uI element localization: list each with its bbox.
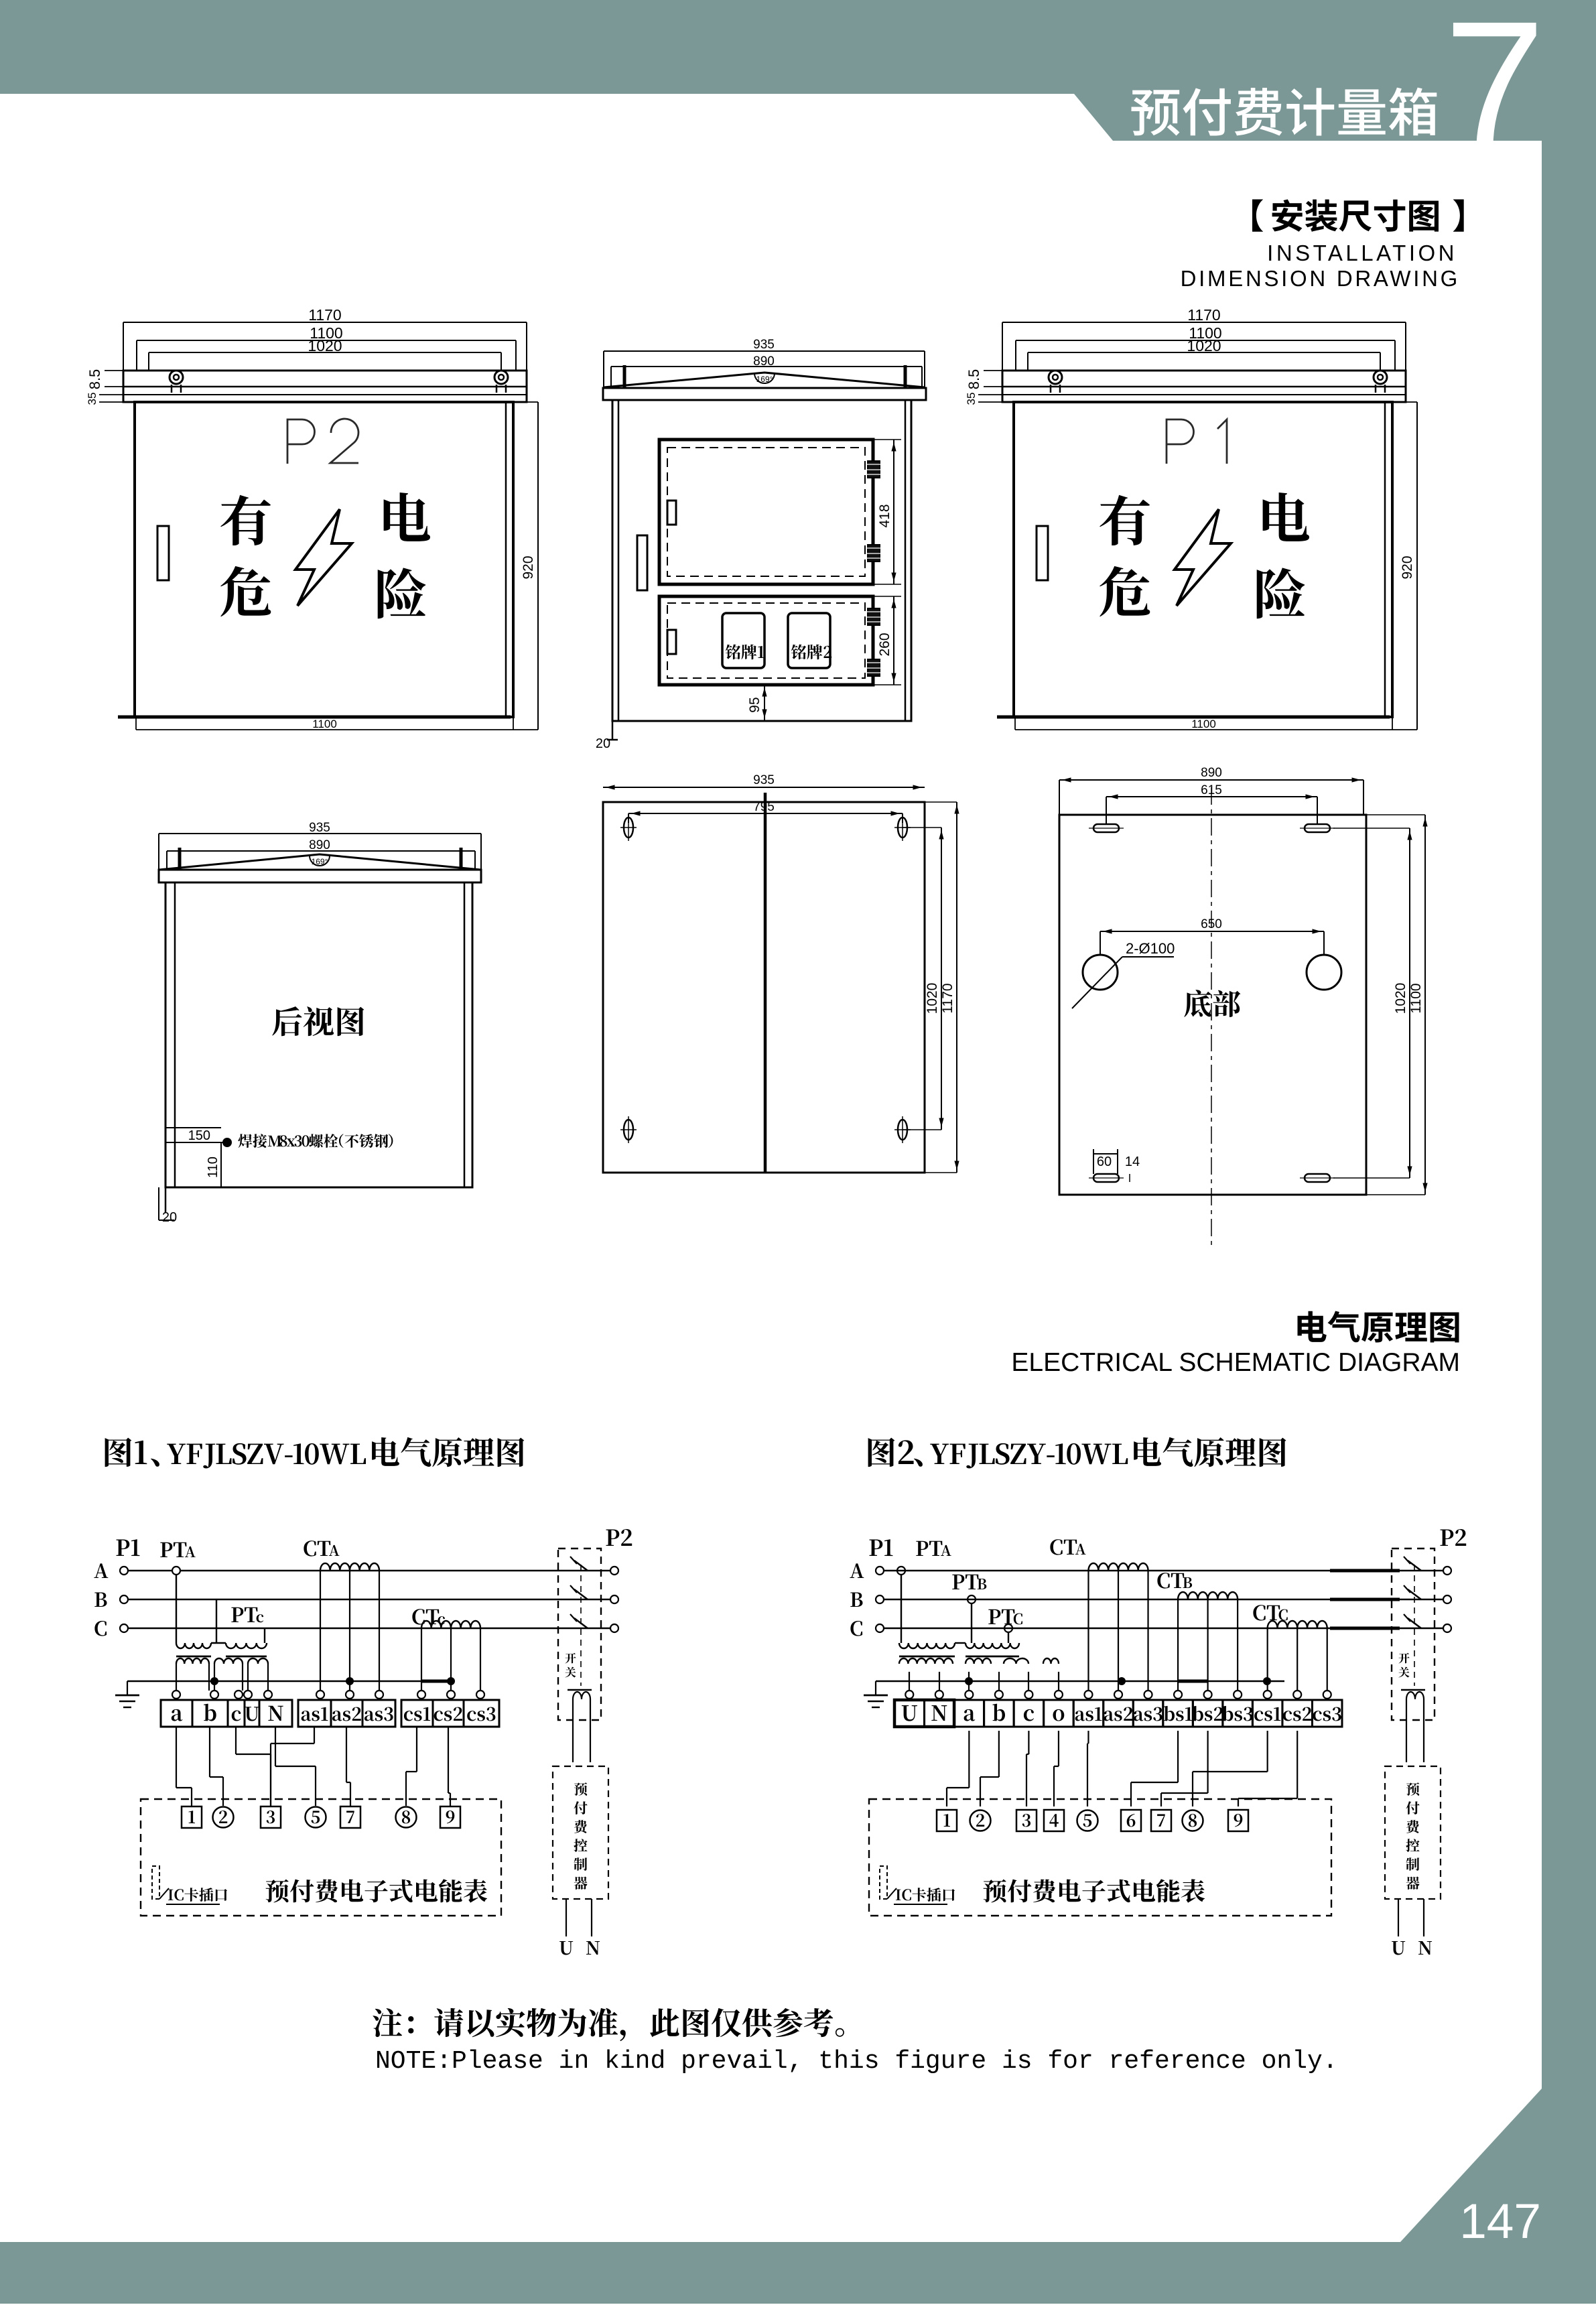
- svg-text:1020: 1020: [1187, 337, 1221, 354]
- svg-text:890: 890: [309, 838, 330, 852]
- svg-text:110: 110: [206, 1157, 220, 1178]
- svg-text:147: 147: [1459, 2194, 1541, 2249]
- svg-text:20: 20: [596, 736, 610, 751]
- svg-text:INSTALLATION: INSTALLATION: [1267, 241, 1457, 265]
- svg-text:150: 150: [188, 1128, 210, 1143]
- svg-text:1170: 1170: [1187, 306, 1220, 324]
- svg-text:14: 14: [1125, 1155, 1140, 1169]
- svg-text:35: 35: [86, 393, 98, 405]
- svg-text:935: 935: [753, 773, 775, 787]
- svg-text:890: 890: [753, 354, 775, 369]
- svg-text:935: 935: [309, 821, 330, 835]
- svg-text:1100: 1100: [312, 718, 337, 730]
- svg-text:35: 35: [965, 393, 978, 405]
- svg-text:1100: 1100: [1191, 718, 1216, 730]
- svg-text:60: 60: [1097, 1155, 1112, 1169]
- svg-text:935: 935: [753, 338, 775, 352]
- svg-text:890: 890: [1201, 766, 1222, 780]
- svg-text:8.5: 8.5: [966, 369, 982, 390]
- svg-text:1020: 1020: [1393, 983, 1408, 1014]
- svg-text:ELECTRICAL SCHEMATIC DIAGRAM: ELECTRICAL SCHEMATIC DIAGRAM: [1011, 1348, 1460, 1377]
- svg-text:1170: 1170: [940, 983, 955, 1013]
- svg-text:7: 7: [1444, 0, 1545, 187]
- svg-text:DIMENSION DRAWING: DIMENSION DRAWING: [1181, 266, 1460, 291]
- svg-text:169°: 169°: [756, 375, 773, 384]
- svg-text:95: 95: [747, 697, 762, 712]
- svg-text:1170: 1170: [308, 306, 341, 324]
- svg-text:20: 20: [162, 1210, 177, 1225]
- svg-text:8.5: 8.5: [86, 369, 103, 390]
- svg-text:260: 260: [877, 633, 892, 656]
- svg-text:418: 418: [877, 504, 892, 527]
- svg-text:2-Ø100: 2-Ø100: [1126, 940, 1175, 957]
- svg-text:920: 920: [521, 555, 536, 579]
- svg-text:1020: 1020: [308, 337, 342, 354]
- svg-text:920: 920: [1400, 555, 1415, 579]
- svg-text:1020: 1020: [925, 983, 940, 1014]
- svg-text:169°: 169°: [312, 857, 328, 866]
- svg-text:650: 650: [1201, 917, 1222, 931]
- svg-text:1100: 1100: [1408, 983, 1424, 1013]
- svg-text:NOTE:Please in kind prevail, t: NOTE:Please in kind prevail, this figure…: [375, 2047, 1338, 2076]
